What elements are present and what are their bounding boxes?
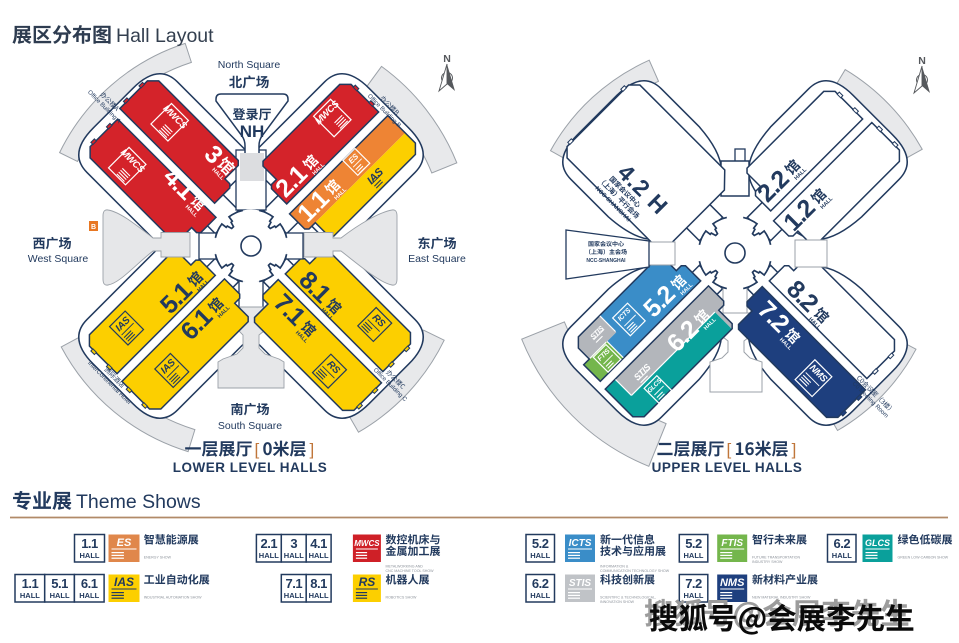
svg-text:1.1: 1.1 <box>22 576 39 591</box>
svg-text:IAS: IAS <box>114 575 134 589</box>
svg-text:1.1: 1.1 <box>81 536 98 551</box>
svg-text:NCC-SHANGHAI: NCC-SHANGHAI <box>586 258 626 264</box>
svg-text:HALL: HALL <box>309 591 329 600</box>
svg-text:3: 3 <box>290 536 297 551</box>
svg-text:North Square: North Square <box>218 59 281 71</box>
svg-text:2.1: 2.1 <box>261 536 278 551</box>
svg-text:NEW MATERIAL INDUSTRY SHOW: NEW MATERIAL INDUSTRY SHOW <box>752 596 811 600</box>
svg-text:ICTS: ICTS <box>569 538 592 549</box>
svg-text:INNOVATION SHOW: INNOVATION SHOW <box>600 600 635 604</box>
svg-text:FTIS: FTIS <box>721 538 743 549</box>
svg-text:Theme Shows: Theme Shows <box>76 491 201 513</box>
svg-text:INFORMATION &: INFORMATION & <box>600 565 629 569</box>
svg-text:ROBOTICS SHOW: ROBOTICS SHOW <box>386 596 418 600</box>
svg-text:5.2: 5.2 <box>685 536 702 551</box>
svg-text:MWCS: MWCS <box>354 539 380 548</box>
svg-text:GLCS: GLCS <box>865 538 890 548</box>
svg-text:HALL: HALL <box>309 551 329 560</box>
svg-text:HALL: HALL <box>80 551 100 560</box>
svg-text:HALL: HALL <box>530 551 550 560</box>
svg-text:4.1: 4.1 <box>310 536 327 551</box>
svg-text:HALL: HALL <box>259 551 279 560</box>
svg-text:HALL: HALL <box>79 591 99 600</box>
svg-text:HALL: HALL <box>20 591 40 600</box>
svg-text:LOWER LEVEL HALLS: LOWER LEVEL HALLS <box>173 460 328 475</box>
svg-text:CNC MACHINE TOOL SHOW: CNC MACHINE TOOL SHOW <box>386 569 435 573</box>
svg-text:N: N <box>918 55 926 67</box>
svg-text:East Square: East Square <box>408 253 466 265</box>
svg-text:B: B <box>91 224 96 231</box>
svg-text:[: [ <box>255 440 260 459</box>
svg-text:NH: NH <box>240 122 265 141</box>
svg-text:8.1: 8.1 <box>310 576 327 591</box>
svg-text:SCIENTIFIC & TECHNOLOGICAL,: SCIENTIFIC & TECHNOLOGICAL, <box>600 596 656 600</box>
svg-text:6.1: 6.1 <box>81 576 98 591</box>
svg-text:7.1: 7.1 <box>286 576 303 591</box>
svg-text:UPPER LEVEL HALLS: UPPER LEVEL HALLS <box>652 460 803 475</box>
svg-text:HALL: HALL <box>50 591 70 600</box>
svg-text:METALWORKING AND: METALWORKING AND <box>386 565 424 569</box>
svg-text:ENERGY SHOW: ENERGY SHOW <box>144 556 172 560</box>
svg-text:GREEN LOW-CARBON SHOW: GREEN LOW-CARBON SHOW <box>898 556 949 560</box>
svg-text:West Square: West Square <box>28 253 89 265</box>
svg-text:[: [ <box>727 440 732 459</box>
svg-text:]: ] <box>792 440 797 459</box>
svg-text:FUTURE TRANSPORTATION: FUTURE TRANSPORTATION <box>752 556 800 560</box>
svg-text:RS: RS <box>359 575 376 589</box>
svg-text:]: ] <box>310 440 315 459</box>
svg-text:HALL: HALL <box>832 551 852 560</box>
svg-text:5.2: 5.2 <box>532 536 549 551</box>
svg-text:ES: ES <box>117 537 132 549</box>
svg-text:STIS: STIS <box>569 578 592 589</box>
svg-text:COMMUNICATION TECHNOLOGY SHOW: COMMUNICATION TECHNOLOGY SHOW <box>600 569 670 573</box>
svg-text:INDUSTRIAL AUTOMATION SHOW: INDUSTRIAL AUTOMATION SHOW <box>144 596 202 600</box>
svg-text:HALL: HALL <box>530 591 550 600</box>
svg-text:NMS: NMS <box>720 577 745 589</box>
svg-text:South Square: South Square <box>218 420 282 432</box>
svg-text:6.2: 6.2 <box>532 576 549 591</box>
svg-text:6.2: 6.2 <box>834 536 851 551</box>
svg-text:N: N <box>443 53 451 65</box>
svg-text:HALL: HALL <box>684 551 704 560</box>
svg-text:HALL: HALL <box>284 591 304 600</box>
svg-text:5.1: 5.1 <box>51 576 68 591</box>
svg-text:INDUSTRY SHOW: INDUSTRY SHOW <box>752 560 783 564</box>
svg-text:HALL: HALL <box>284 551 304 560</box>
svg-text:HALL: HALL <box>684 591 704 600</box>
svg-text:Hall Layout: Hall Layout <box>116 25 214 47</box>
svg-text:7.2: 7.2 <box>685 576 702 591</box>
